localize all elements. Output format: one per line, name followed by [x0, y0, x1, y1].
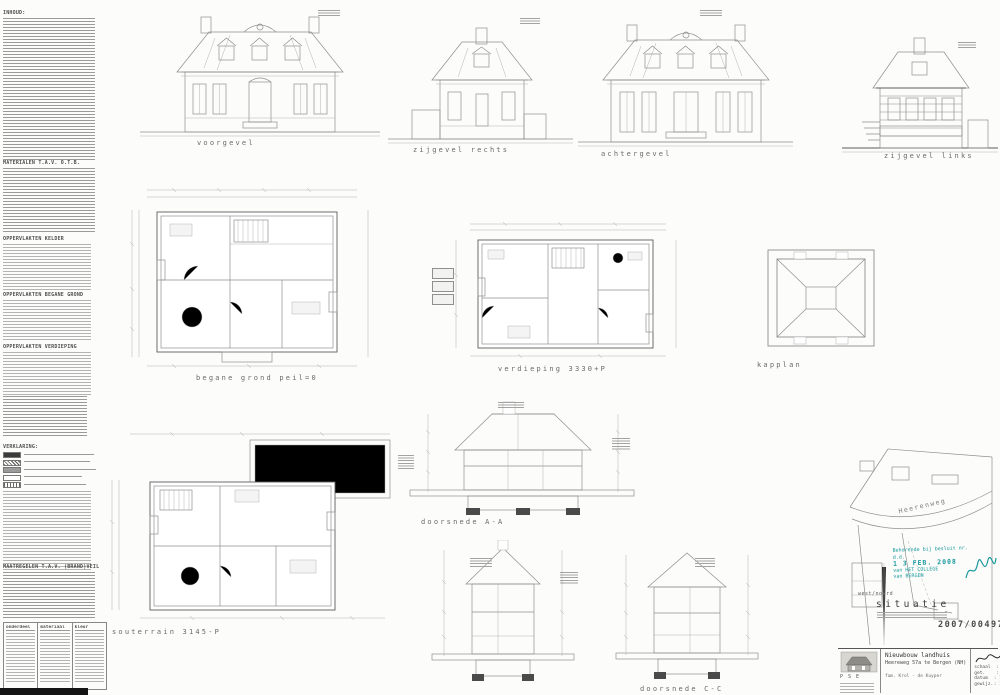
annotation-notes: [470, 558, 492, 568]
label-zijgevel-links: zijgevel links: [884, 152, 974, 160]
architect-signature: [974, 651, 1000, 665]
label-voorgevel: voorgevel: [197, 139, 255, 147]
elevation-zijgevel-rechts-drawing: [388, 22, 573, 147]
elevation-voorgevel-drawing: [140, 8, 380, 143]
oppervlakten-verd-heading: OPPERVLAKTEN VERDIEPING: [3, 344, 99, 350]
materialen-body-text: [3, 168, 95, 234]
label-kapplan: kapplan: [757, 361, 802, 369]
verklaring-heading: VERKLARING:: [3, 444, 99, 450]
totalen-body-text: [3, 396, 87, 436]
column-header: onderdeel: [6, 625, 35, 631]
field-row: gewijz.: 13-02-2008: [974, 682, 1000, 688]
oppervlakten-bg-table: [3, 300, 91, 342]
verklaring-abbreviations: [3, 491, 91, 575]
plan-kapplan-drawing: [762, 242, 880, 354]
legend-row: [3, 460, 99, 466]
maatregelen-heading: MAATREGELEN T.A.V. (BRAND)VEILIGHEID: [3, 564, 99, 570]
plan-verdieping-drawing: [448, 218, 683, 363]
detail-chip: [432, 294, 454, 305]
title-block: P S E Nieuwbouw landhuis Heereweg 57a te…: [838, 648, 998, 693]
section-bb-drawing: [428, 540, 578, 692]
legend-row: [3, 467, 99, 473]
materials-colors-table: onderdeel materiaal kleur: [3, 622, 107, 690]
table-column-kleur: kleur: [73, 623, 106, 689]
label-begane-grond: begane grond peil=0: [196, 374, 318, 382]
approval-signature: [962, 548, 998, 588]
annotation-notes: [958, 42, 976, 50]
project-title: Nieuwbouw landhuis: [885, 652, 966, 659]
annotation-notes: [560, 572, 578, 584]
verklaring-block: VERKLARING:: [3, 444, 99, 575]
oppervlakten-bg-heading: OPPERVLAKTEN BEGANE GROND: [3, 292, 99, 298]
client-name: fam. Krol - de Kuyper: [885, 674, 966, 679]
oppervlakten-kelder-heading: OPPERVLAKTEN KELDER: [3, 236, 99, 242]
map-direction-label: west/noord: [858, 591, 893, 597]
legend-swatch-open: [3, 475, 21, 481]
oppervlakten-kelder-block: OPPERVLAKTEN KELDER: [3, 236, 99, 290]
table-column-materiaal: materiaal: [38, 623, 72, 689]
materialen-heading: MATERIALEN T.A.V. O.T.B.: [3, 160, 99, 166]
legend-swatch-hatched: [3, 460, 21, 466]
oppervlakten-verd-block: OPPERVLAKTEN VERDIEPING: [3, 344, 99, 396]
oppervlakten-bg-block: OPPERVLAKTEN BEGANE GROND: [3, 292, 99, 342]
maatregelen-body-text: [3, 572, 95, 620]
oppervlakten-kelder-table: [3, 244, 91, 290]
elevation-achtergevel-drawing: [578, 12, 793, 152]
title-block-project-cell: Nieuwbouw landhuis Heereweg 57a te Berge…: [881, 649, 971, 693]
label-doorsnede-aa: doorsnede A-A: [421, 518, 504, 526]
label-doorsnede-cc: doorsnede C-C: [640, 685, 723, 693]
inhoud-heading: INHOUD:: [3, 10, 99, 16]
plan-begane-grond-drawing: [122, 182, 377, 374]
inhoud-body-text: [3, 18, 95, 160]
drawing-sheet: INHOUD: MATERIALEN T.A.V. O.T.B. OPPERVL…: [0, 0, 1000, 695]
label-situatie: situatie: [876, 599, 950, 610]
label-zijgevel-rechts: zijgevel rechts: [413, 146, 509, 154]
label-verdieping: verdieping 3330+P: [498, 365, 607, 373]
detail-chip: [432, 281, 454, 292]
annotation-notes: [612, 438, 630, 450]
annotation-notes: [498, 402, 524, 410]
label-achtergevel: achtergevel: [601, 150, 672, 158]
legend-row: [3, 452, 99, 458]
title-block-sketch-cell: P S E: [838, 649, 881, 693]
legend-row: [3, 482, 99, 488]
house-sketch-thumbnail: [840, 651, 878, 673]
annotation-notes: [398, 455, 414, 469]
situatie-subtext: [877, 612, 947, 619]
table-column-onderdeel: onderdeel: [4, 623, 38, 689]
annotation-notes: [318, 10, 340, 18]
firm-address-lines: [840, 683, 874, 693]
legend-swatch-striped: [3, 482, 21, 488]
project-address: Heereweg 57a te Bergen (NH): [885, 660, 966, 666]
scan-corner-bar: [0, 688, 88, 695]
maatregelen-block: MAATREGELEN T.A.V. (BRAND)VEILIGHEID: [3, 564, 99, 620]
legend-row: [3, 475, 99, 481]
totalen-text-block: [3, 396, 99, 436]
plan-souterrain-drawing: [100, 420, 400, 625]
logo-text: P S E: [840, 674, 878, 680]
column-header: materiaal: [40, 625, 69, 631]
section-cc-drawing: [612, 545, 762, 687]
column-header: kleur: [75, 625, 104, 631]
oppervlakten-verd-table: [3, 352, 91, 396]
permit-number-stamp: 2007/00497: [938, 620, 1000, 630]
annotation-notes: [700, 10, 722, 18]
title-block-fields-cell: schaal: 1:100 get.: B.K.B. datum: 17-11-…: [971, 649, 1000, 693]
legend-swatch-grey: [3, 467, 21, 473]
section-aa-drawing: [408, 400, 636, 518]
annotation-notes: [520, 18, 540, 24]
annotation-notes: [695, 558, 715, 568]
inhoud-text-block: INHOUD:: [3, 10, 99, 160]
detail-chip: [432, 268, 454, 279]
label-souterrain: souterrain 3145-P: [112, 628, 221, 636]
legend-swatch-solid: [3, 452, 21, 458]
materialen-text-block: MATERIALEN T.A.V. O.T.B.: [3, 160, 99, 234]
